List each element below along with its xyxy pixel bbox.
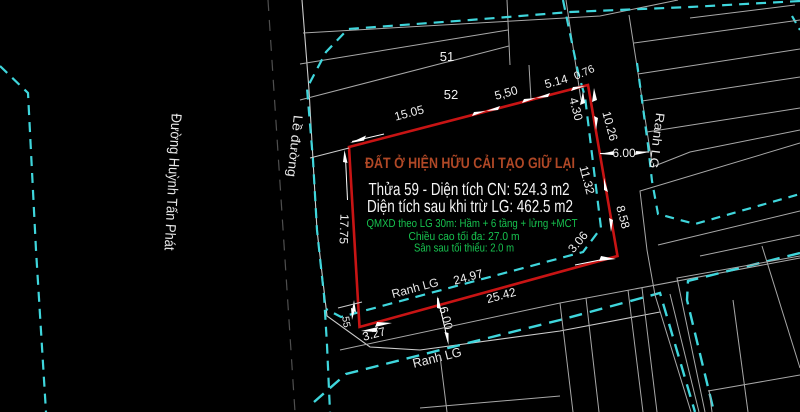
svg-text:ĐẤT Ở HIỆN HỮU CẢI TẠO GIỮ LẠI: ĐẤT Ở HIỆN HỮU CẢI TẠO GIỮ LẠI: [365, 154, 575, 172]
svg-text:6.00: 6.00: [612, 146, 636, 160]
svg-text:Chiều cao tối đa: 27.0 m: Chiều cao tối đa: 27.0 m: [409, 231, 520, 243]
svg-text:QMXD theo LG 30m: Hầm + 6 tầng: QMXD theo LG 30m: Hầm + 6 tầng + lửng +M…: [367, 218, 578, 230]
svg-text:51: 51: [440, 49, 454, 64]
svg-text:Sân sau tối thiểu: 2.0 m: Sân sau tối thiểu: 2.0 m: [414, 242, 514, 255]
svg-text:17.75: 17.75: [336, 214, 351, 245]
svg-text:Diện tích sau khi trừ LG: 462.: Diện tích sau khi trừ LG: 462.5 m2: [367, 196, 573, 216]
svg-text:52: 52: [444, 87, 458, 102]
